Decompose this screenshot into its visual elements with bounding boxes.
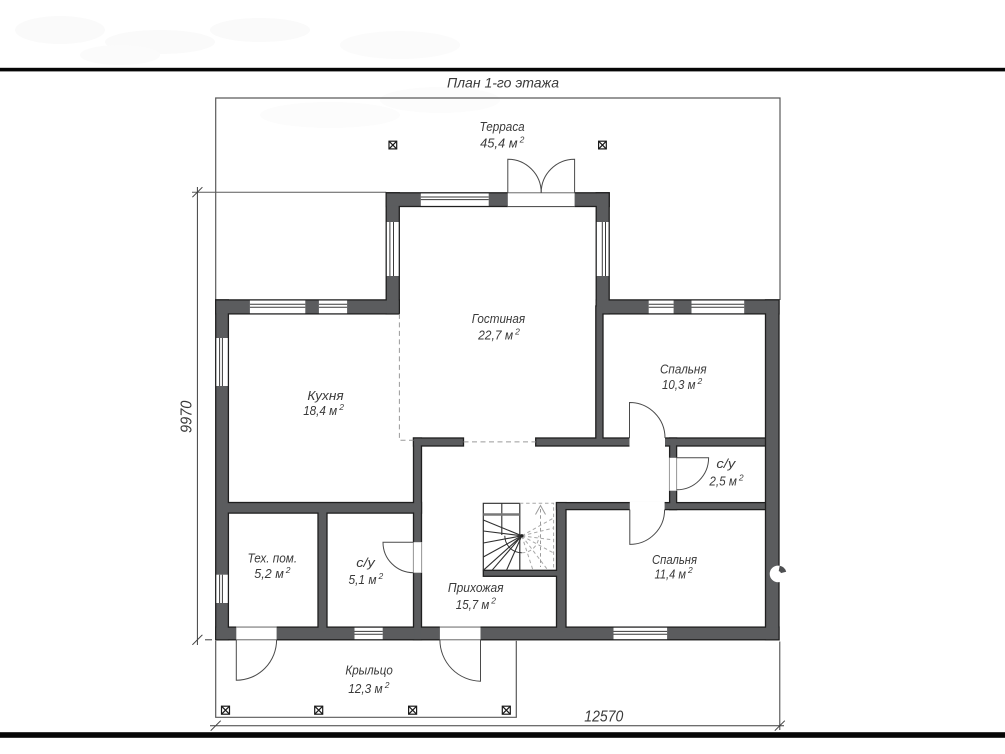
svg-text:2: 2 [384, 680, 390, 690]
svg-text:12,3 м: 12,3 м [348, 682, 383, 696]
svg-text:2: 2 [338, 402, 344, 412]
svg-text:План 1-го этажа: План 1-го этажа [447, 75, 559, 91]
svg-text:Прихожая: Прихожая [448, 581, 504, 595]
svg-text:2: 2 [285, 565, 291, 575]
svg-text:15,7 м: 15,7 м [456, 598, 490, 612]
svg-text:18,4 м: 18,4 м [303, 404, 337, 418]
svg-text:45,4 м: 45,4 м [480, 137, 518, 151]
svg-text:Тех. пом.: Тех. пом. [248, 551, 298, 565]
svg-text:2: 2 [697, 376, 703, 386]
svg-text:5,2 м: 5,2 м [254, 567, 284, 581]
svg-text:2: 2 [519, 134, 525, 144]
svg-text:Терраса: Терраса [480, 120, 525, 134]
svg-text:5,1 м: 5,1 м [349, 573, 377, 587]
svg-text:2: 2 [514, 326, 520, 336]
svg-text:с/у: с/у [356, 556, 375, 570]
svg-text:11,4 м: 11,4 м [655, 567, 687, 581]
svg-text:Гостиная: Гостиная [472, 312, 526, 326]
svg-text:2: 2 [687, 565, 693, 575]
svg-text:12570: 12570 [584, 708, 623, 725]
svg-text:2: 2 [490, 596, 496, 606]
svg-text:22,7 м: 22,7 м [477, 329, 513, 343]
svg-text:9970: 9970 [179, 401, 196, 433]
svg-text:Спальня: Спальня [660, 363, 707, 377]
svg-text:Крыльцо: Крыльцо [345, 664, 392, 678]
svg-text:с/у: с/у [716, 457, 736, 471]
svg-text:2: 2 [378, 571, 384, 581]
svg-text:2: 2 [738, 472, 744, 482]
svg-text:2,5 м: 2,5 м [708, 475, 737, 489]
svg-text:10,3 м: 10,3 м [662, 378, 696, 392]
